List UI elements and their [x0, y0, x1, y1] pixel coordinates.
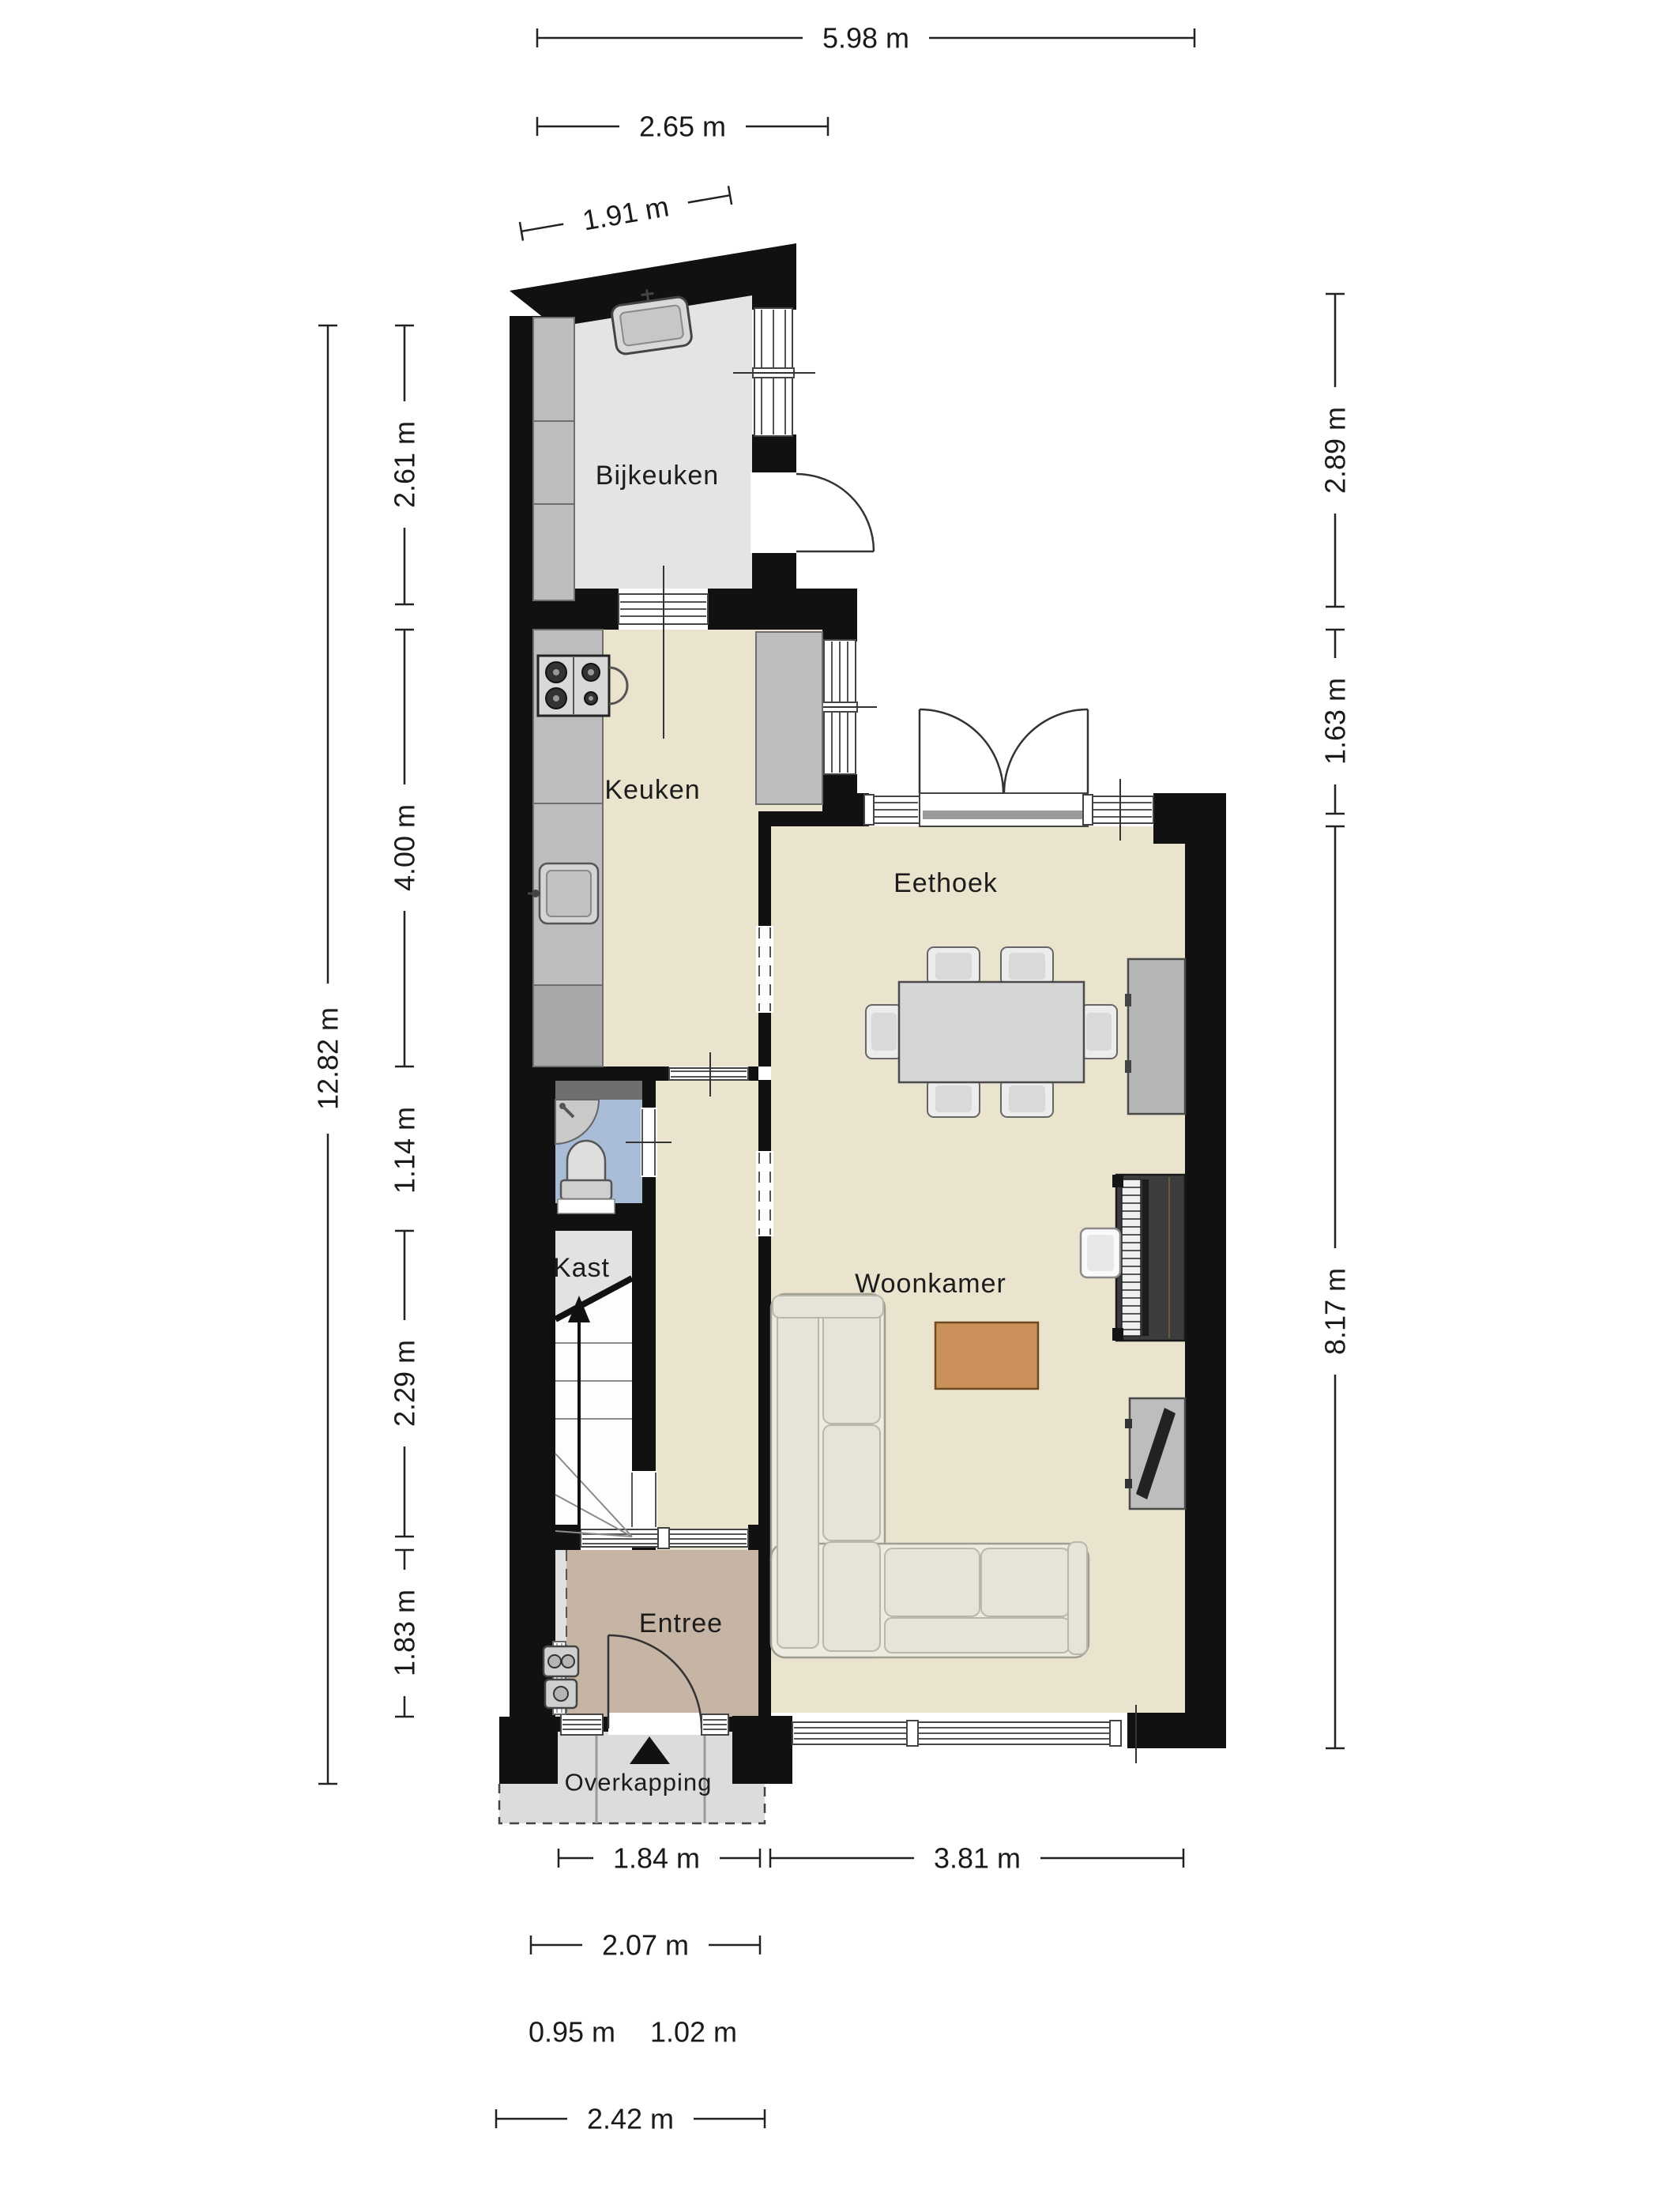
dim-bottom-entree: 1.84 m: [559, 1841, 760, 1875]
room-label-overkapping: Overkapping: [565, 1769, 713, 1796]
dim-left-keuken: 4.00 m: [388, 630, 421, 1066]
dim-bottom-canopy-total: 2.42 m: [496, 2101, 765, 2136]
door-french-doors: [920, 709, 1088, 826]
room-label-bijkeuken: Bijkeuken: [596, 461, 719, 491]
opening-hal-woonkamer: [756, 1151, 773, 1236]
room-label-entree: Entree: [639, 1608, 723, 1638]
door-bijkeuken: [750, 472, 874, 553]
dim-left-bijkeuken: 2.61 m: [388, 325, 421, 604]
wall-bijkeuken-right: [752, 434, 796, 474]
window-woonkamer: [792, 1705, 1136, 1763]
wall-living-facade: [1127, 1713, 1226, 1748]
window-entree: [561, 1714, 603, 1735]
svg-text:5.98 m: 5.98 m: [822, 22, 909, 55]
opening-stairs: [630, 1471, 657, 1529]
svg-text:2.29 m: 2.29 m: [389, 1340, 421, 1427]
room-label-eethoek: Eethoek: [893, 868, 998, 898]
wall-eethoek-corner: [1153, 793, 1226, 844]
svg-text:1.91 m: 1.91 m: [580, 190, 671, 236]
wc-bulkhead: [555, 1081, 642, 1100]
wall-living-left: [758, 1013, 771, 1066]
svg-text:2.07 m: 2.07 m: [602, 1929, 689, 1962]
dim-right-bay: 1.63 m: [1319, 630, 1352, 814]
room-label-keuken: Keuken: [604, 775, 700, 805]
sideboard: [1125, 959, 1185, 1114]
svg-text:0.95 m: 0.95 m: [529, 2016, 615, 2048]
svg-text:8.17 m: 8.17 m: [1319, 1268, 1352, 1355]
window-hal-entree: [581, 1528, 748, 1548]
room-label-woonkamer: Woonkamer: [855, 1269, 1006, 1299]
floorplan-page: Bijkeuken Keuken Eethoek Woonkamer Kast …: [0, 0, 1659, 2212]
wall-bijkeuken-right: [752, 292, 796, 310]
coffee-table: [935, 1322, 1038, 1389]
svg-text:1.84 m: 1.84 m: [613, 1842, 700, 1875]
svg-text:1.02 m: 1.02 m: [650, 2016, 737, 2048]
svg-text:2.65 m: 2.65 m: [639, 111, 726, 143]
dim-top-slant: 1.91 m: [518, 179, 733, 249]
dim-bottom-canopy-right: 1.02 m: [634, 2014, 753, 2049]
wall-living-left: [758, 826, 771, 926]
wall-facade-step-block: [732, 1716, 792, 1784]
dim-right-living: 8.17 m: [1319, 826, 1352, 1748]
wall-keuken-eethoek: [758, 811, 857, 826]
wall-keuken-bottom: [748, 1066, 758, 1081]
wall-entree-top: [748, 1525, 771, 1550]
stairs-floor: [555, 1278, 632, 1537]
opening-keuken-eethoek: [756, 926, 773, 1013]
dim-bottom-living: 3.81 m: [770, 1841, 1183, 1875]
svg-text:1.83 m: 1.83 m: [389, 1589, 421, 1676]
svg-text:1.14 m: 1.14 m: [389, 1107, 421, 1194]
wall-left-foot: [499, 1717, 558, 1784]
svg-text:2.89 m: 2.89 m: [1319, 407, 1352, 494]
wall-wc-right: [642, 1066, 656, 1108]
dim-bottom-canopy-left: 0.95 m: [513, 2014, 631, 2049]
wall-bijkeuken-right: [752, 551, 796, 589]
wall-living-left: [758, 1236, 771, 1722]
dim-left-kast-stairs: 2.29 m: [388, 1231, 421, 1537]
bijkeuken-counter: [533, 318, 574, 600]
dining-table: [899, 982, 1084, 1082]
wall-entree-top: [510, 1525, 581, 1550]
room-label-kast: Kast: [553, 1253, 610, 1283]
dim-left-total: 12.82 m: [311, 325, 344, 1784]
window-entree-side: [702, 1714, 728, 1735]
dim-top-bijkeuken-width: 2.65 m: [537, 109, 828, 144]
svg-text:2.61 m: 2.61 m: [389, 421, 421, 508]
svg-text:12.82 m: 12.82 m: [312, 1007, 344, 1110]
svg-text:4.00 m: 4.00 m: [389, 804, 421, 891]
wall-right: [1185, 844, 1226, 1748]
dim-bottom-entree-outer: 2.07 m: [531, 1928, 760, 1962]
dim-top-overall: 5.98 m: [537, 21, 1194, 55]
svg-text:2.42 m: 2.42 m: [587, 2103, 674, 2135]
window-eethoek-left: [864, 795, 920, 825]
svg-text:1.63 m: 1.63 m: [1319, 678, 1352, 765]
wall-bijkeuken-bottom: [708, 589, 857, 630]
dim-left-wc: 1.14 m: [388, 1087, 421, 1213]
wall-entree-facade: [555, 1717, 561, 1732]
dim-left-entree: 1.83 m: [388, 1550, 421, 1717]
keuken-bay-cabinet: [756, 632, 822, 804]
wall-stairs-right: [632, 1231, 656, 1471]
dim-right-bijkeuken: 2.89 m: [1319, 294, 1352, 607]
tv-cabinet: [1125, 1398, 1185, 1509]
wall-living-left: [758, 1080, 771, 1151]
svg-text:3.81 m: 3.81 m: [934, 1842, 1021, 1875]
hallway-floor: [656, 1081, 758, 1550]
floorplan-svg: Bijkeuken Keuken Eethoek Woonkamer Kast …: [0, 0, 1659, 2212]
